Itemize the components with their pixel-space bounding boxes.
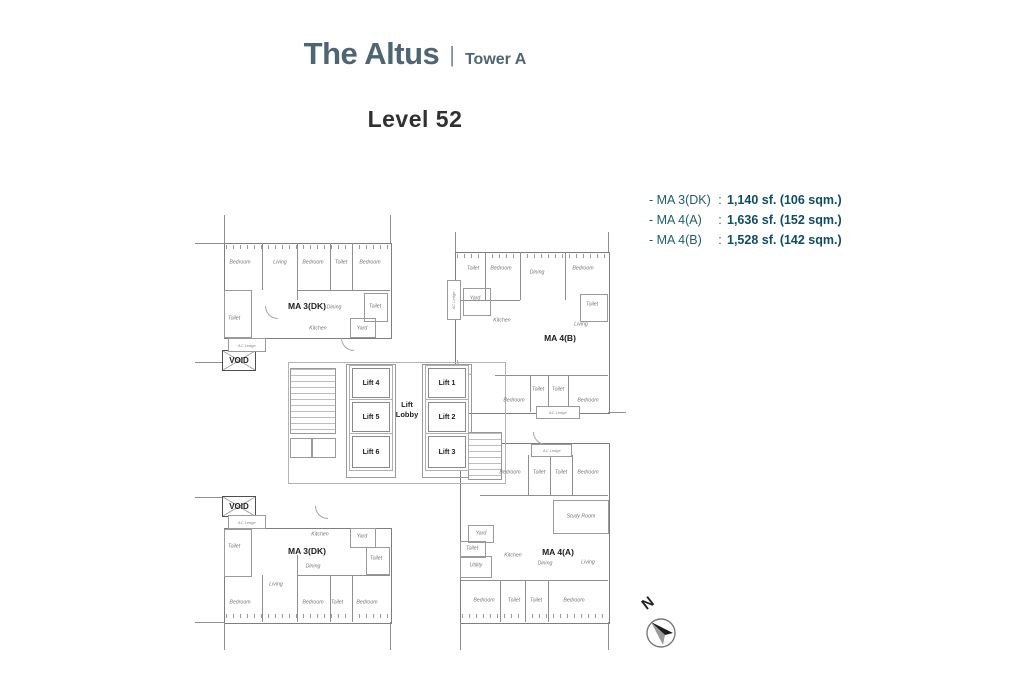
legend-unit-name: - MA 3(DK) [649,193,713,207]
wall [550,455,551,495]
room-label: Bedroom [577,397,598,403]
wall-stub [455,232,456,252]
room-label: Utility [470,562,483,568]
wall [480,495,608,496]
lift-cell: Lift 4 [352,368,390,398]
wall-toilet-box [224,290,252,338]
legend-unit-area: 1,140 sf. (106 sqm.) [727,193,842,207]
room-label: Toilet [369,303,381,309]
wall-hatch [226,245,388,249]
room-label: Toilet [335,259,347,265]
void-box: VOID [222,350,256,371]
legend-unit-name: - MA 4(A) [649,213,713,227]
wall [352,243,353,290]
wall [548,580,549,622]
room-label: Bedroom [302,599,323,605]
wall [297,575,390,576]
room-label: Toilet [467,265,479,271]
wall-stub [608,412,626,413]
ac-ledge-box: AC Ledge [536,406,580,419]
lift-cell: Lift 6 [352,436,390,468]
room-label: Bedroom [302,259,323,265]
room-label: Living [581,559,595,565]
room-label: Yard [476,530,487,536]
legend-row: - MA 4(A) : 1,636 sf. (152 sqm.) [649,210,842,230]
ac-ledge-box: AC Ledge [531,444,572,457]
ac-ledge-box: AC Ledge [228,338,266,352]
north-label: N [639,593,658,613]
room-label: Toilet [555,469,567,475]
room-label: Bedroom [473,597,494,603]
room-label: Kitchen [309,325,326,331]
legend-unit-area: 1,636 sf. (152 sqm.) [727,213,842,227]
wall-stub [608,622,609,650]
wall [520,252,521,300]
wall [330,243,331,290]
wall-toilet-box [224,529,252,577]
wall [297,290,390,291]
wall-hatch [457,254,606,258]
unit-name-label: MA 4(B) [544,333,576,343]
wall-service-box [290,438,312,458]
floor-plan-drawing: MA 3(DK)BedroomLivingBedroomToiletBedroo… [195,210,655,655]
room-label: Bedroom [490,265,511,271]
room-label: Bedroom [499,469,520,475]
wall [297,243,298,300]
wall [297,555,298,622]
wall-hatch [226,614,388,618]
door-arc [341,338,354,351]
wall-stub [224,215,225,243]
legend-colon: : [713,193,727,207]
wall [495,375,608,376]
room-label: Dining [530,269,545,275]
room-label: Living [574,321,588,327]
staircase [290,368,336,434]
wall [528,455,529,495]
legend-row: - MA 3(DK) : 1,140 sf. (106 sqm.) [649,190,842,210]
room-label: Kitchen [493,317,510,323]
page-title: The Altus [304,36,440,71]
room-label: Toilet [466,545,478,551]
room-label: Bedroom [577,469,598,475]
wall-stub [195,497,222,498]
void-box: VOID [222,496,256,517]
wall-stub [390,622,391,650]
room-label: Bedroom [359,259,380,265]
wall [572,455,573,495]
wall-stub [195,622,224,623]
wall-toilet-box [366,547,390,575]
room-label: Toilet [331,599,343,605]
room-label: Bedroom [229,259,250,265]
room-label: Bedroom [572,265,593,271]
floor-plan-page: { "header": { "title": "The Altus", "sep… [0,0,1024,690]
room-label: Toilet [228,543,240,549]
compass-needle-light [651,622,665,645]
legend-colon: : [713,213,727,227]
title-separator: | [449,42,455,67]
room-label: Toilet [228,315,240,321]
ac-ledge-box: AC Ledge [228,515,266,529]
room-label: Living [273,259,287,265]
lift-cell: Lift 2 [428,402,466,432]
wall [530,375,531,412]
room-label: Dining [327,304,342,310]
room-label: Bedroom [356,599,377,605]
wall-service-box [312,438,336,458]
room-label: Toilet [532,386,544,392]
wall [262,243,263,290]
staircase [468,432,502,480]
room-label: Toilet [370,555,382,561]
room-label: Dining [306,563,321,569]
wall [352,575,353,622]
wall-hatch [462,614,606,618]
wall [460,580,608,581]
wall-stub [608,232,609,252]
legend-unit-area: 1,528 sf. (142 sqm.) [727,233,842,247]
room-label: Toilet [552,386,564,392]
wall-stub [195,243,224,244]
wall-stub [390,215,391,243]
ac-ledge-box: AC Ledge [447,280,461,320]
wall-toilet-box [580,294,608,322]
lift-cell: Lift 3 [428,436,466,468]
legend-row: - MA 4(B) : 1,528 sf. (142 sqm.) [649,230,842,250]
lift-cell: Lift 5 [352,402,390,432]
lift-lobby-label: Lift Lobby [389,400,425,420]
legend-colon: : [713,233,727,247]
room-label: Yard [357,325,368,331]
room-label: Yard [357,533,368,539]
room-label: Study Room [567,513,596,519]
room-label: Toilet [508,597,520,603]
room-label: Bedroom [503,397,524,403]
wall [525,580,526,622]
header: The Altus|Tower A [0,36,830,72]
wall [262,575,263,622]
door-arc [315,506,328,519]
room-label: Bedroom [563,597,584,603]
unit-name-label: MA 3(DK) [288,301,326,311]
room-label: Toilet [586,301,598,307]
room-label: Kitchen [311,531,328,537]
wall-yard-box [463,288,491,316]
room-label: Dining [538,560,553,566]
north-compass: N [638,592,684,654]
lift-cell: Lift 1 [428,368,466,398]
tower-label: Tower A [465,51,526,68]
wall-stub [224,622,225,650]
room-label: Toilet [530,597,542,603]
unit-name-label: MA 3(DK) [288,546,326,556]
legend-unit-name: - MA 4(B) [649,233,713,247]
room-label: Toilet [533,469,545,475]
unit-area-legend: - MA 3(DK) : 1,140 sf. (106 sqm.) - MA 4… [649,190,842,250]
room-label: Living [269,581,283,587]
wall [565,252,566,300]
room-label: Kitchen [504,552,521,558]
wall-stub [195,362,222,363]
room-label: Bedroom [229,599,250,605]
wall [500,580,501,622]
room-label: Yard [470,295,481,301]
wall-stub [460,622,461,650]
level-label: Level 52 [0,106,830,133]
unit-name-label: MA 4(A) [542,547,574,557]
